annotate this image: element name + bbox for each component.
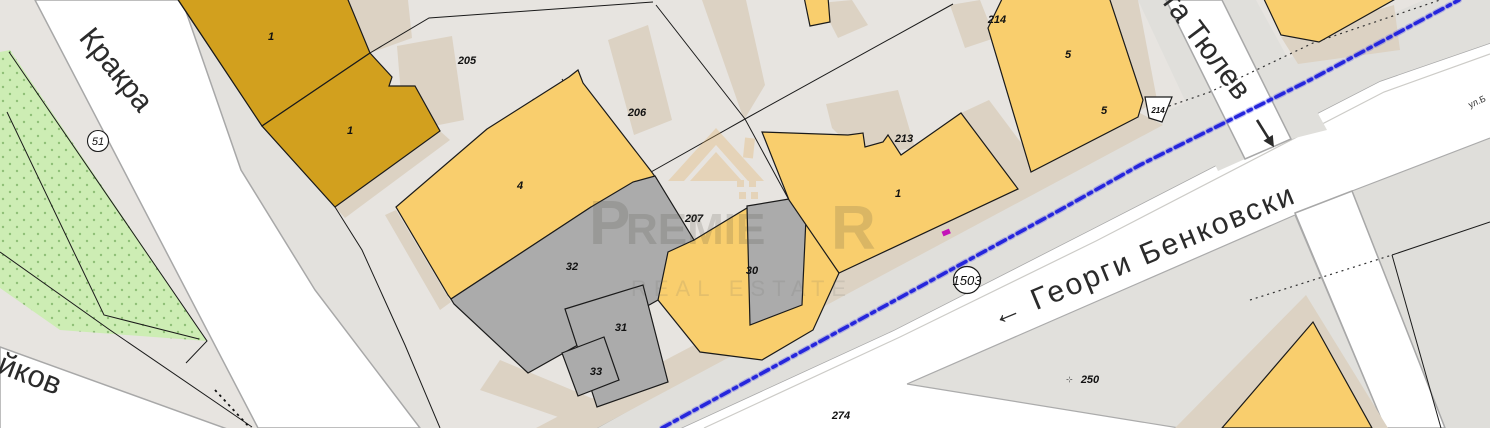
svg-text:205: 205	[457, 55, 477, 67]
svg-text:214: 214	[1150, 106, 1165, 115]
svg-text:5: 5	[1065, 49, 1072, 61]
svg-text:31: 31	[615, 322, 627, 334]
svg-text:1503: 1503	[953, 273, 983, 288]
svg-text:⊹: ⊹	[1066, 375, 1073, 384]
svg-text:P: P	[589, 189, 630, 258]
svg-text:1: 1	[347, 125, 353, 137]
svg-text:1: 1	[268, 31, 274, 43]
svg-text:R: R	[831, 194, 876, 263]
svg-text:4: 4	[516, 180, 523, 192]
svg-text:REMIE: REMIE	[626, 205, 765, 254]
svg-text:5: 5	[1101, 105, 1108, 117]
svg-text:274: 274	[831, 410, 850, 422]
svg-text:213: 213	[894, 133, 913, 145]
svg-text:214: 214	[987, 14, 1006, 26]
svg-text:250: 250	[1080, 374, 1100, 386]
svg-text:32: 32	[566, 261, 578, 273]
svg-text:206: 206	[627, 107, 647, 119]
svg-text:33: 33	[590, 366, 602, 378]
svg-text:51: 51	[92, 136, 104, 148]
svg-text:REAL ESTATE: REAL ESTATE	[631, 276, 853, 301]
svg-text:1: 1	[895, 188, 901, 200]
